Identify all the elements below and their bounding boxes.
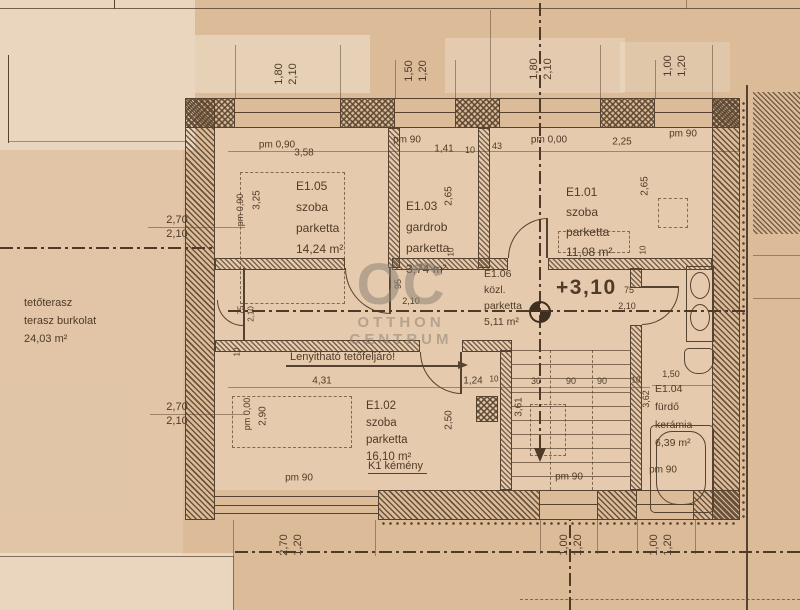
witness-line [395, 60, 396, 98]
dashed-outline [232, 396, 352, 448]
room-use: szoba [366, 415, 411, 432]
window [235, 98, 340, 128]
wall-pier [600, 98, 655, 128]
attic-hatch-note: Lenyitható tetőfeljáró! [290, 351, 395, 363]
room-finish: kerámia [655, 416, 692, 434]
dashed-outline [658, 198, 688, 228]
window-frame-line [235, 112, 340, 113]
bottom-dashed-line [520, 599, 800, 600]
room-label-e106: E1.06 közl. parketta 5,11 m² [484, 266, 522, 330]
scan-edge-line [233, 556, 234, 610]
washbasin [690, 304, 710, 331]
level-text: +3,10 [556, 276, 617, 300]
terrace-boundary-line [8, 141, 187, 142]
door-leaf [642, 286, 679, 288]
section-arrow-icon [534, 448, 546, 462]
scan-patch [195, 35, 370, 93]
room-id: E1.03 [406, 196, 449, 217]
window-frame-line [655, 112, 712, 113]
right-margin-line [753, 255, 800, 256]
wall-right [712, 98, 740, 520]
scan-patch [0, 0, 195, 150]
right-margin-line [746, 85, 748, 610]
room-label-e101: E1.01 szoba parketta 11,08 m² [566, 182, 612, 262]
room-area: 11,08 m² [566, 242, 612, 262]
floor-plan: +3,10 OC OTTHON CENTRUM E1.05 szoba park… [0, 0, 800, 610]
scan-tick [114, 0, 115, 9]
window-frame-line [500, 112, 600, 113]
toilet [684, 348, 714, 374]
dimension-line [228, 151, 740, 152]
window [500, 98, 600, 128]
stair-guide-line [592, 350, 593, 490]
witness-line [235, 45, 236, 98]
scan-patch [445, 38, 625, 93]
dimension-line [148, 227, 245, 228]
dimension-line [228, 387, 650, 388]
axis-line-horizontal [0, 247, 215, 249]
insulation-dots [380, 521, 738, 526]
window-frame-line [395, 112, 455, 113]
watermark: OC OTTHON CENTRUM [336, 256, 466, 348]
scan-edge-line [8, 55, 9, 143]
witness-line [712, 45, 713, 98]
axis-line-horizontal [235, 551, 800, 553]
section-line-vertical [539, 0, 541, 448]
wall-bottom-pier [597, 490, 637, 520]
scan-patch [0, 553, 234, 610]
window-band [215, 496, 378, 514]
window [655, 98, 712, 128]
window [395, 98, 455, 128]
window-frame-line [215, 505, 378, 506]
wall-left [185, 98, 215, 520]
scan-edge-line [0, 556, 234, 557]
room-use: szoba [296, 197, 343, 218]
window-frame-line [540, 504, 597, 505]
dimension-line [150, 414, 245, 415]
room-id: E1.01 [566, 182, 612, 202]
wall-pier [340, 98, 395, 128]
room-finish: parketta [296, 218, 343, 239]
window [540, 490, 597, 520]
witness-line [600, 45, 601, 98]
washbasin [690, 272, 710, 299]
room-label-e104: E1.04 fürdő kerámia 6,39 m² [655, 380, 692, 452]
room-finish: parketta [366, 432, 411, 449]
scan-tick [686, 0, 687, 9]
scan-patch [620, 42, 730, 92]
door-leaf [546, 218, 548, 258]
wall-interior [630, 268, 642, 288]
room-use: fürdő [655, 398, 692, 416]
insulation-dots [741, 100, 746, 518]
watermark-text: OTTHON [336, 314, 466, 331]
room-id: E1.05 [296, 176, 343, 197]
chimney-note: K1 kémény [368, 460, 427, 474]
wall-pier [455, 98, 500, 128]
wall-interior [478, 128, 490, 268]
room-area: 5,11 m² [484, 314, 522, 330]
terrace-area: 24,03 m² [24, 330, 96, 348]
arrow-right-icon [458, 361, 468, 369]
scan-patch [0, 150, 183, 555]
terrace-line: tetőterasz [24, 294, 96, 312]
room-area: 6,39 m² [655, 434, 692, 452]
attic-leader-line [286, 365, 458, 367]
dimension-label: 1,20 [417, 60, 429, 81]
room-id: E1.02 [366, 398, 411, 415]
witness-line [455, 60, 456, 98]
room-label-e102: E1.02 szoba parketta 16,10 m² [366, 398, 411, 466]
room-use: közl. [484, 282, 522, 298]
wall-interior [388, 128, 400, 268]
wall-interior [500, 350, 512, 490]
watermark-logo: OC [336, 256, 466, 314]
wall-bottom [378, 490, 540, 520]
terrace-label: tetőterasz terasz burkolat 24,03 m² [24, 294, 96, 348]
room-finish: parketta [484, 298, 522, 314]
room-use: gardrob [406, 217, 449, 238]
witness-line [655, 60, 656, 98]
room-finish: parketta [566, 222, 612, 242]
terrace-line: terasz burkolat [24, 312, 96, 330]
dimension-label: 1,50 [403, 60, 415, 81]
watermark-text: CENTRUM [336, 331, 466, 348]
section-line-vertical [569, 520, 571, 610]
chimney [476, 396, 498, 422]
scan-edge-line [0, 8, 800, 9]
witness-line [490, 10, 491, 98]
level-marker-icon [529, 301, 551, 323]
wall-interior [630, 325, 642, 490]
room-label-e105: E1.05 szoba parketta 14,24 m² [296, 176, 343, 260]
room-id: E1.04 [655, 380, 692, 398]
right-margin-line [753, 298, 800, 299]
adjacent-roof-hatch [753, 92, 800, 234]
witness-line [233, 520, 234, 556]
room-id: E1.06 [484, 266, 522, 282]
witness-line [340, 45, 341, 98]
room-use: szoba [566, 202, 612, 222]
